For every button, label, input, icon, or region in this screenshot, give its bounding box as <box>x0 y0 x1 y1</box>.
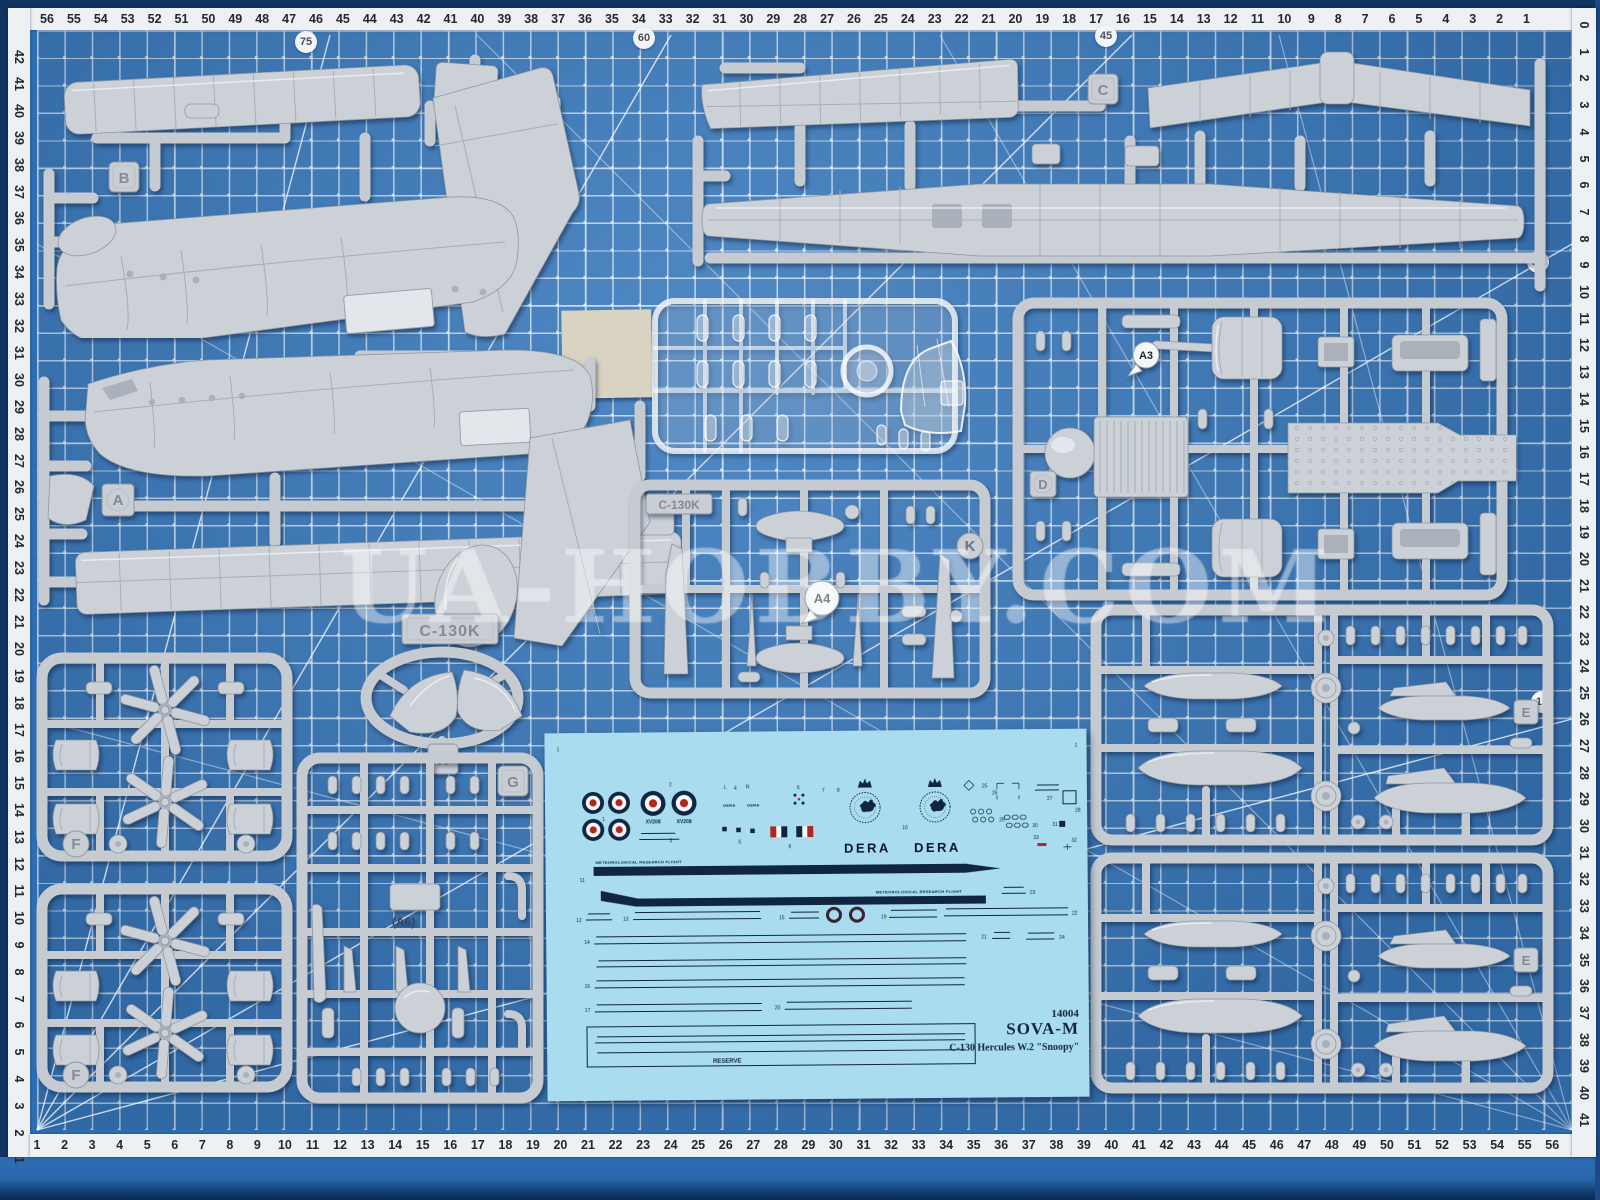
angle-guide-label: 60 <box>633 27 655 49</box>
decal-index-number: 17 <box>585 1008 591 1014</box>
clear-part <box>877 425 886 445</box>
decal-index-number: 4 <box>734 786 737 792</box>
sprue-tag-b: B <box>109 162 139 192</box>
decal-index-number: 16 <box>585 984 591 990</box>
brand-name: SOVA-M <box>1006 1019 1079 1039</box>
sprue-tag-d: D <box>1030 471 1056 497</box>
decal-index-number: 8 <box>837 788 840 794</box>
cargo-floor-part <box>1288 423 1516 493</box>
sprue-tag-a3: A3 <box>1128 342 1159 376</box>
clear-part <box>941 381 963 405</box>
decal-index-number: 15 <box>779 915 785 921</box>
svg-text:C-130K: C-130K <box>658 498 700 512</box>
radome-dome-part <box>1045 428 1095 478</box>
sprue-c: C <box>680 46 1565 301</box>
decal-index-number: 5 <box>738 840 741 846</box>
decal-index-number: 25 <box>982 784 988 790</box>
decal-index-number: 3 <box>669 838 672 844</box>
curved-panel-part <box>1212 317 1282 379</box>
decal-serial: XV208 <box>677 819 692 825</box>
decal-index-number: R <box>746 785 750 791</box>
disc-part <box>395 983 445 1033</box>
decal-dera-small: DERA <box>723 803 736 808</box>
kit-name: C-130 Hercules W.2 "Snoopy" <box>949 1042 1079 1054</box>
decal-index-number: 1 <box>1075 743 1078 749</box>
decal-index-number: 18 <box>839 899 845 905</box>
decal-index-number: 14 <box>584 940 590 946</box>
blade-part <box>312 904 326 1002</box>
decal-index-number: 1 <box>557 747 560 753</box>
one-piece-wing-part <box>702 184 1524 256</box>
decal-mrf-title: METEOROLOGICAL RESEARCH FLIGHT <box>876 889 963 895</box>
decal-index-number: 10 <box>902 825 908 831</box>
clear-part <box>899 429 908 449</box>
decal-index-number: 13 <box>623 917 629 923</box>
small-part <box>1032 144 1060 164</box>
ramp-tray-part <box>1392 523 1468 559</box>
decal-index-number: 22 <box>1072 911 1078 917</box>
decal-index-number: 28 <box>1075 808 1081 814</box>
decal-index-number: 24 <box>1059 935 1065 941</box>
sprue-g: (A6) G <box>292 746 547 1110</box>
decal-index-number: 32 <box>1071 838 1077 844</box>
decal-index-number: 27 <box>1047 796 1053 802</box>
decal-index-number: 2 <box>669 782 672 788</box>
decal-dera-title: DERA <box>844 840 891 855</box>
fuselage-half-part <box>57 197 519 338</box>
box-part <box>1318 337 1354 367</box>
fuselage-half-part <box>85 350 592 476</box>
sprue-b: B <box>35 46 580 338</box>
decal-index-number: 7 <box>822 788 825 794</box>
decal-serial: XV208 <box>646 819 661 825</box>
decal-index-number: 19 <box>881 914 887 920</box>
decal-index-number: L <box>724 785 727 791</box>
clear-ring-part <box>843 347 891 395</box>
svg-text:G: G <box>507 774 519 791</box>
sprue-tag-c: C <box>1088 74 1118 104</box>
decal-index-number: 29 <box>999 817 1005 823</box>
ribbed-panel-part <box>1094 417 1188 497</box>
decal-index-number: 26 <box>992 790 998 796</box>
decal-index-number: 21 <box>981 935 987 941</box>
fuselage-spine-part <box>64 64 421 135</box>
angle-degrees: 45 <box>1100 30 1112 42</box>
small-part <box>1480 513 1496 575</box>
sprue-plate-c130k: C-130K <box>646 494 712 514</box>
watermark: UA-HOBBY.COM <box>340 528 1335 646</box>
angle-guide-label: 45 <box>1095 25 1117 47</box>
decal-mrf-title: METEOROLOGICAL RESEARCH FLIGHT <box>596 859 683 865</box>
small-part <box>1125 146 1159 166</box>
sprue-f-2 <box>32 876 297 1100</box>
decal-index-number: 9 <box>788 844 791 850</box>
decal-index-number: 11 <box>580 878 585 884</box>
sprue-e-2 <box>1086 848 1561 1100</box>
decal-index-number: 1 <box>602 817 605 823</box>
wing-panel-part <box>1148 52 1530 128</box>
decal-dera-title: DERA <box>914 840 961 855</box>
ramp-tray-part <box>1392 335 1468 371</box>
svg-text:D: D <box>1038 477 1047 492</box>
decal-sheet: XV208 XV208 DERA DERA <box>544 729 1089 1102</box>
sprue-tag-g: G <box>498 766 528 796</box>
svg-text:C: C <box>1098 82 1109 99</box>
svg-text:A: A <box>113 492 124 509</box>
decal-index-number: 23 <box>1030 890 1036 896</box>
decal-index-number: 6 <box>797 785 800 791</box>
nose-cone-part <box>48 474 94 524</box>
angle-degrees: 60 <box>638 32 650 44</box>
decal-index-number: 33 <box>1033 835 1039 841</box>
svg-text:(A6): (A6) <box>392 915 415 929</box>
propeller-spinner <box>390 672 457 733</box>
cutting-mat-photo: 5655545352515049484746454443424140393837… <box>0 0 1600 1200</box>
decal-index-number: 12 <box>576 918 582 924</box>
clear-part <box>921 431 930 451</box>
decal-index-number: 30 <box>1032 823 1038 829</box>
svg-text:A3: A3 <box>1139 350 1153 362</box>
clear-sprue <box>645 293 975 471</box>
decal-index-number: 20 <box>775 1005 781 1011</box>
svg-text:B: B <box>119 170 130 187</box>
sprue-f-1 <box>32 648 297 866</box>
decal-reserve-label: RESERVE <box>713 1059 742 1065</box>
small-part <box>1122 315 1180 328</box>
small-part <box>1480 319 1496 381</box>
sprue-tag-a: A <box>102 484 134 516</box>
decal-dera-small: DERA <box>747 802 760 807</box>
decal-index-number: 31 <box>1052 822 1058 828</box>
small-part <box>185 104 219 118</box>
